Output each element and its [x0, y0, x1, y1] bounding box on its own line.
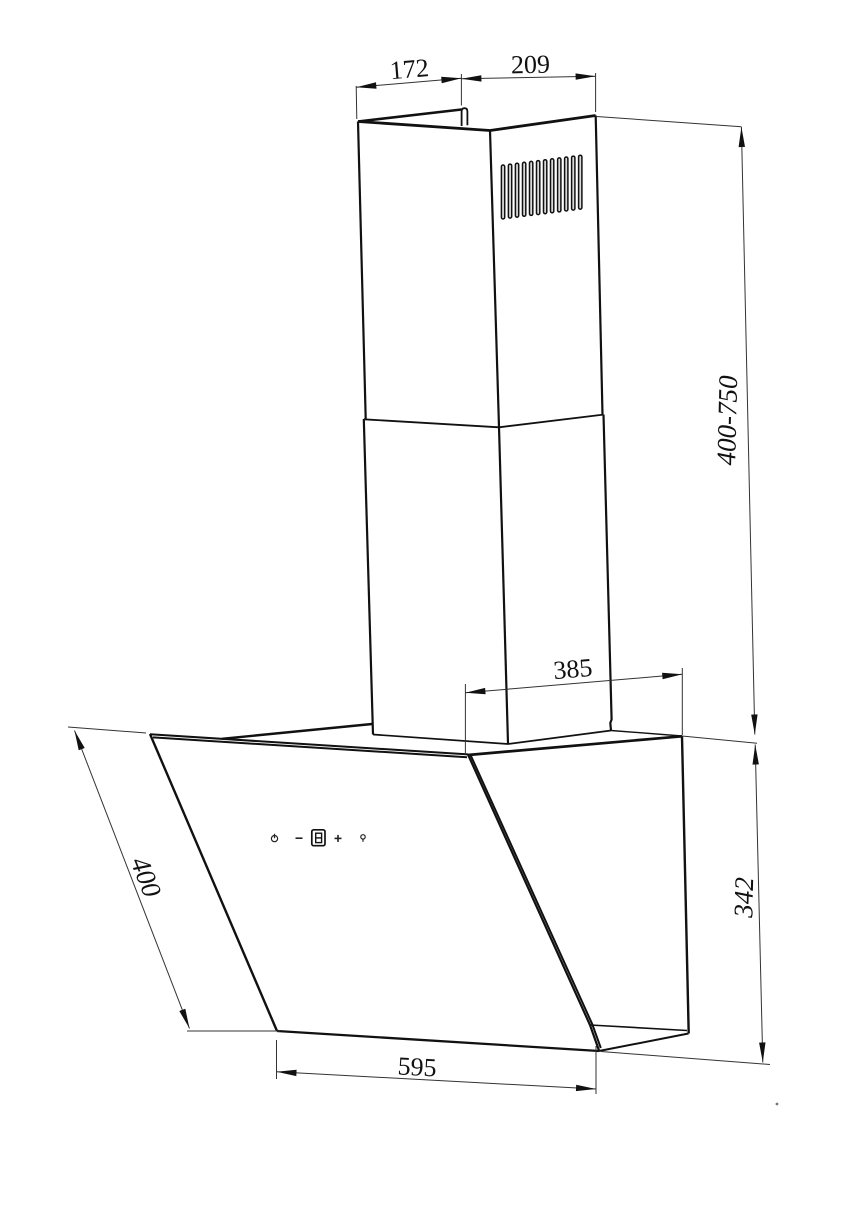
svg-text:342: 342: [728, 877, 759, 919]
svg-text:400-750: 400-750: [711, 375, 743, 466]
svg-text:595: 595: [397, 1051, 438, 1082]
svg-text:385: 385: [552, 653, 593, 685]
svg-text:209: 209: [511, 50, 551, 80]
svg-text:172: 172: [389, 53, 430, 85]
